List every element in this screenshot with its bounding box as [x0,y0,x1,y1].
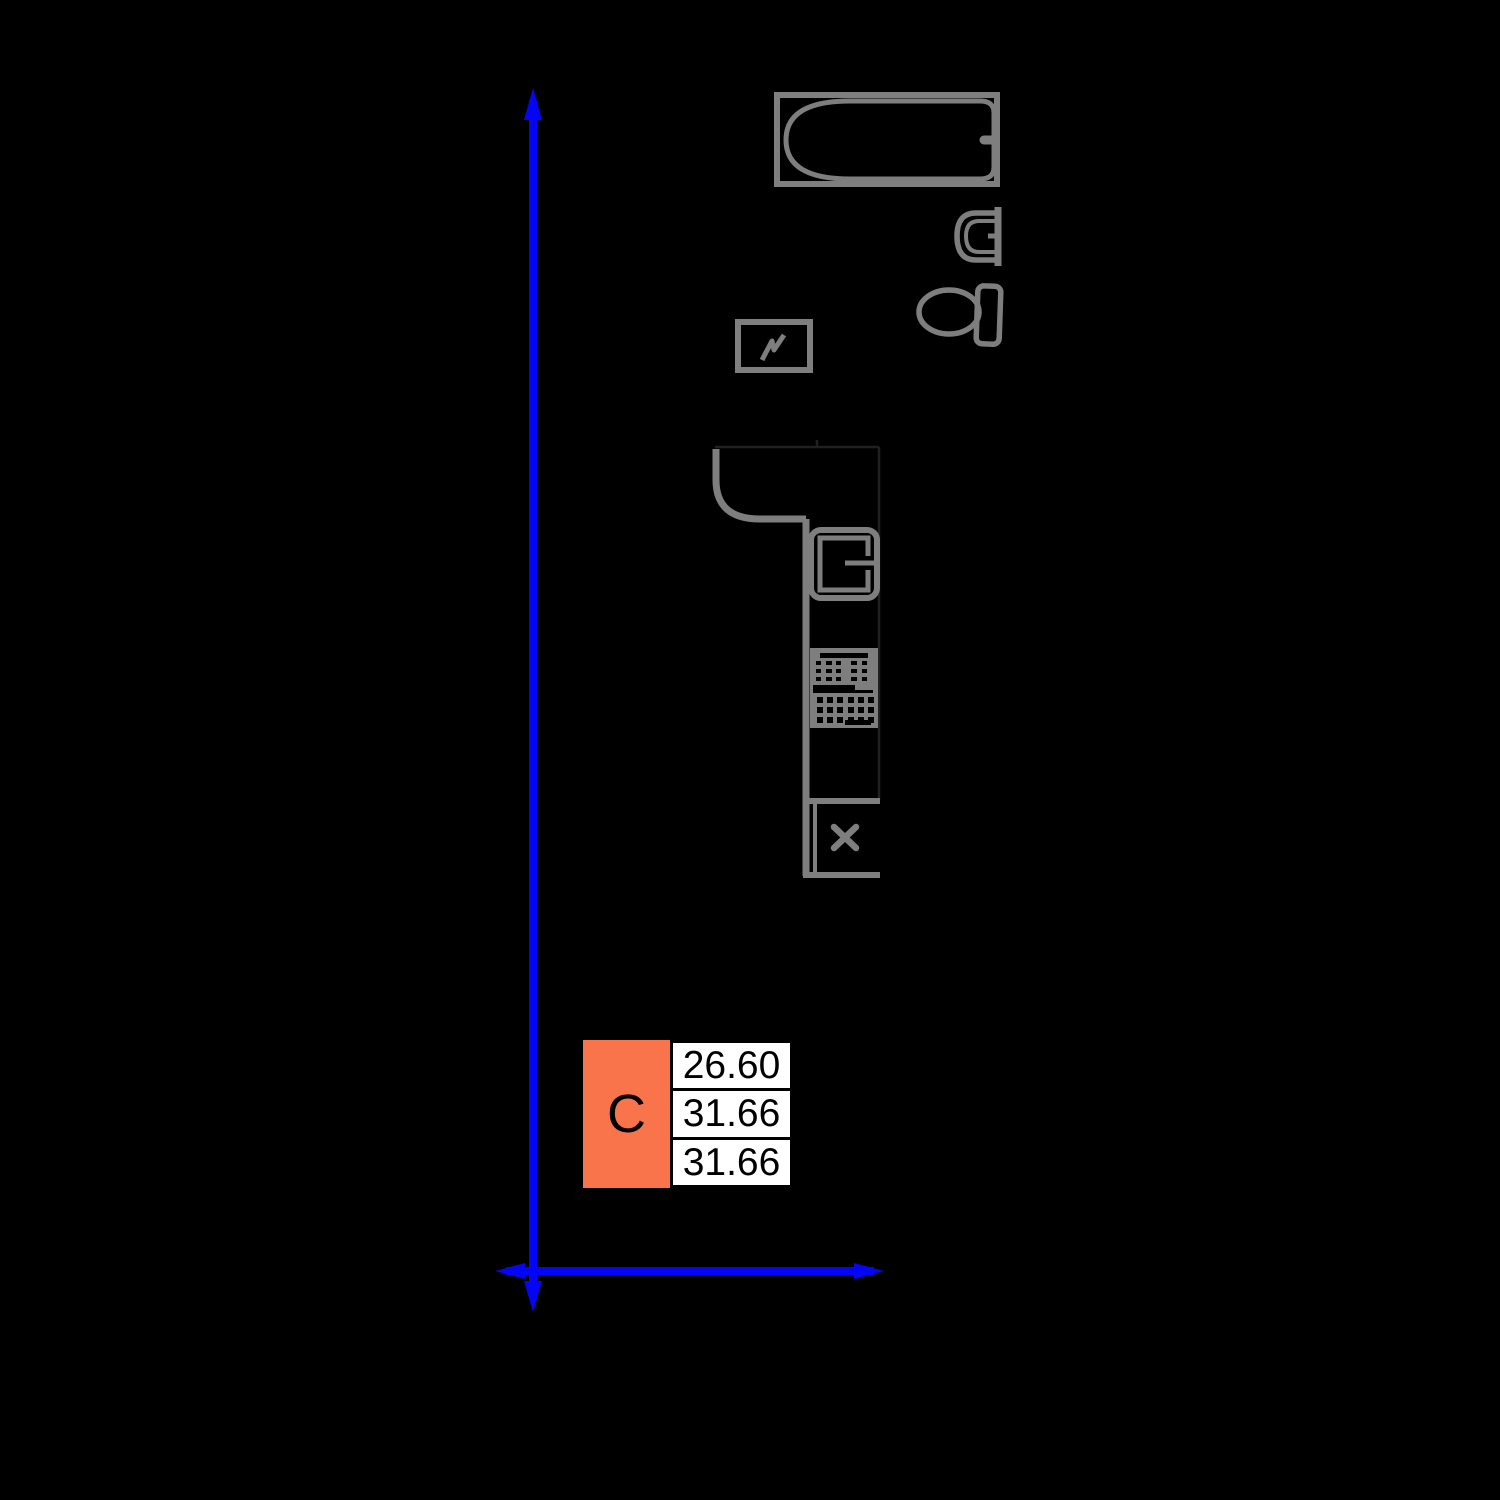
stove-icon [810,648,878,728]
counter-outline-layer [715,440,879,801]
arrow-up-icon [524,88,542,120]
x-mark [834,827,856,848]
arrow-left-icon [495,1263,525,1279]
fixtures-layer [716,95,1001,876]
unit-type-label: C [607,1087,646,1141]
area-value-cell: 26.60 [670,1040,793,1091]
y-axis [524,88,542,1312]
arrow-right-icon [854,1263,884,1279]
refrigerator-icon [803,801,880,875]
bathtub-icon [777,95,997,184]
lightning-symbol [762,335,784,360]
area-value-cell: 31.66 [670,1137,793,1188]
floor-plan-canvas: C 26.60 31.66 31.66 [0,0,1500,1500]
area-value-cell: 31.66 [670,1088,793,1139]
kitchen-sink-icon [811,530,879,598]
floor-plan-drawing [0,0,1500,1500]
bathroom-sink-icon [957,207,1000,266]
kitchen-counter [716,449,806,876]
unit-legend: C 26.60 31.66 31.66 [583,1040,793,1188]
electrical-panel-icon [738,322,810,370]
toilet-icon [919,286,1001,345]
x-axis [495,1263,884,1279]
unit-type-box: C [583,1040,670,1188]
area-values-table: 26.60 31.66 31.66 [670,1040,793,1188]
arrow-down-icon [524,1281,542,1312]
